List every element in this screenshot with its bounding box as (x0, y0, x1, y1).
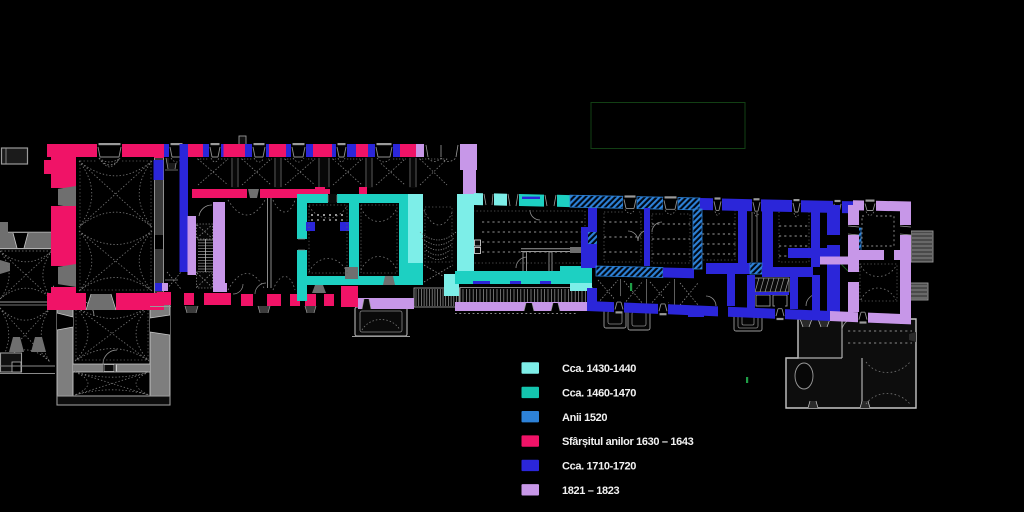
svg-text:1821 – 1823: 1821 – 1823 (562, 485, 620, 497)
svg-text:Cca. 1430-1440: Cca. 1430-1440 (562, 363, 636, 375)
svg-text:Cca. 1710-1720: Cca. 1710-1720 (562, 461, 636, 473)
svg-text:Sfârșitul anilor 1630 – 1643: Sfârșitul anilor 1630 – 1643 (562, 436, 694, 448)
svg-text:Anii 1520: Anii 1520 (562, 412, 607, 424)
svg-text:Cca. 1460-1470: Cca. 1460-1470 (562, 388, 636, 400)
